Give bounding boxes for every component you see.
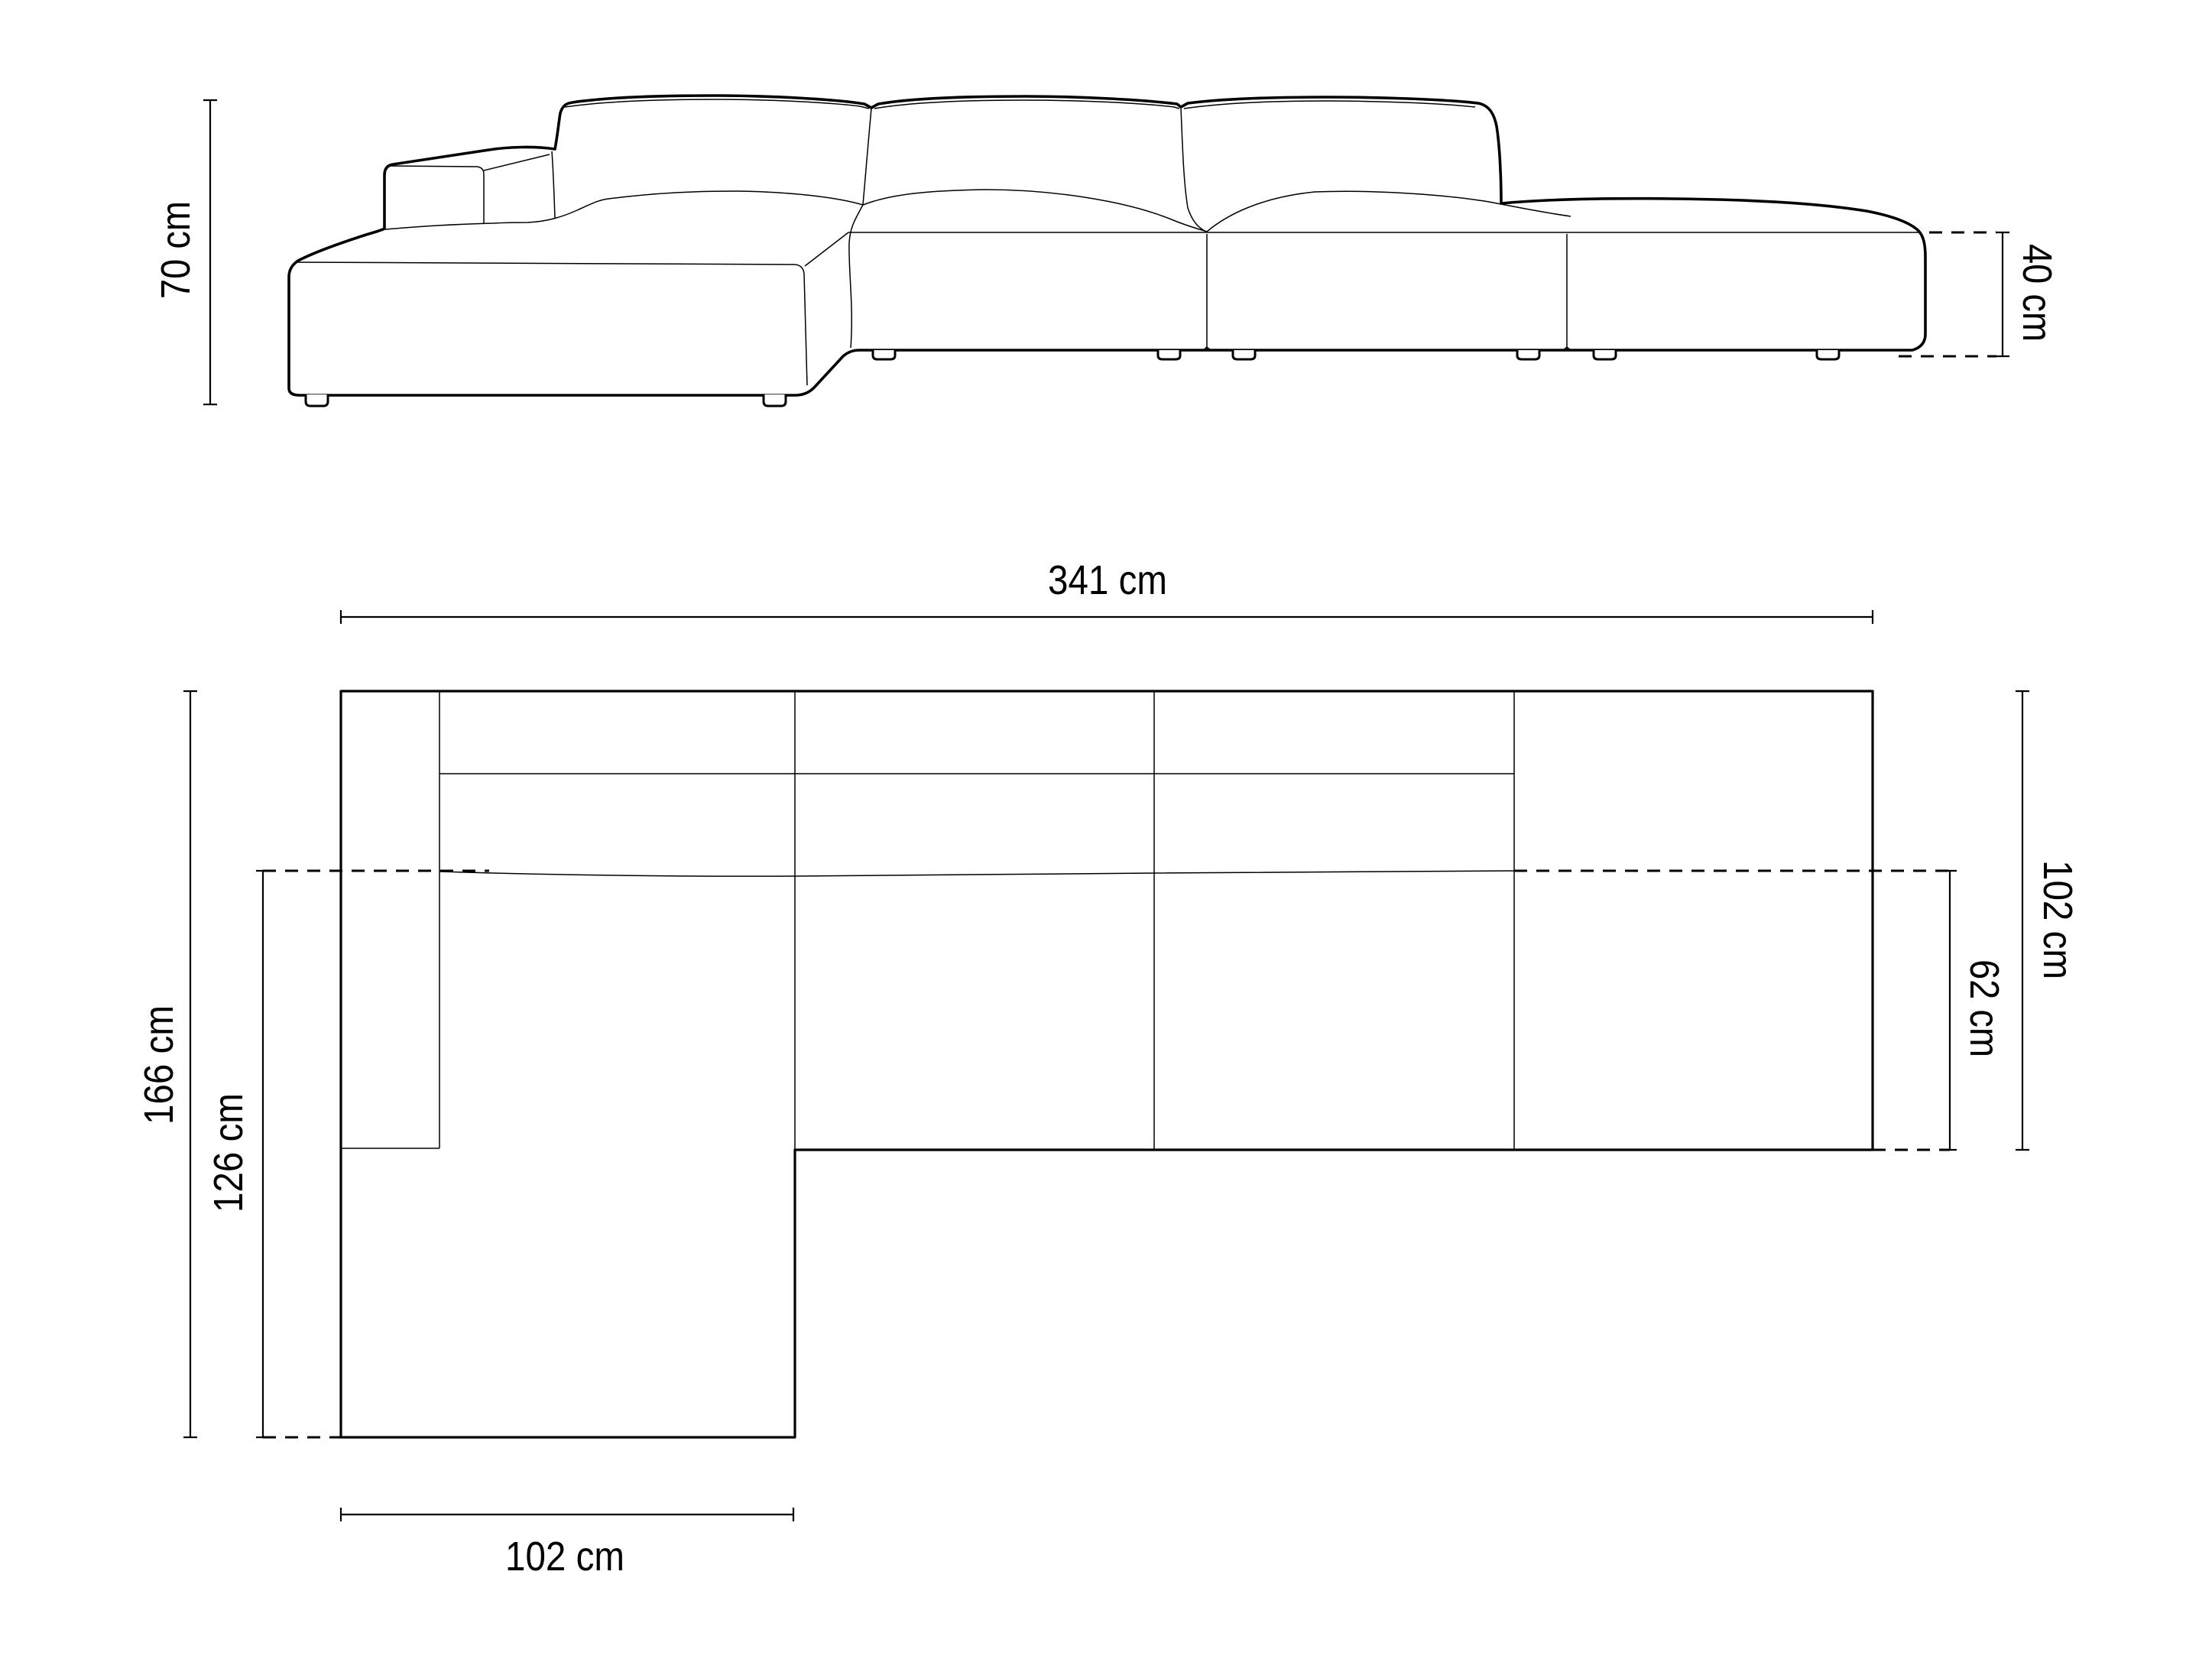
svg-text:126 cm: 126 cm [206,1093,251,1213]
svg-text:166 cm: 166 cm [136,1005,182,1125]
svg-text:102 cm: 102 cm [505,1534,624,1579]
svg-text:62 cm: 62 cm [1961,959,2007,1057]
svg-text:341 cm: 341 cm [1048,557,1167,603]
svg-text:70 cm: 70 cm [153,201,199,299]
svg-text:40 cm: 40 cm [2014,244,2060,342]
svg-text:102 cm: 102 cm [2035,860,2081,979]
